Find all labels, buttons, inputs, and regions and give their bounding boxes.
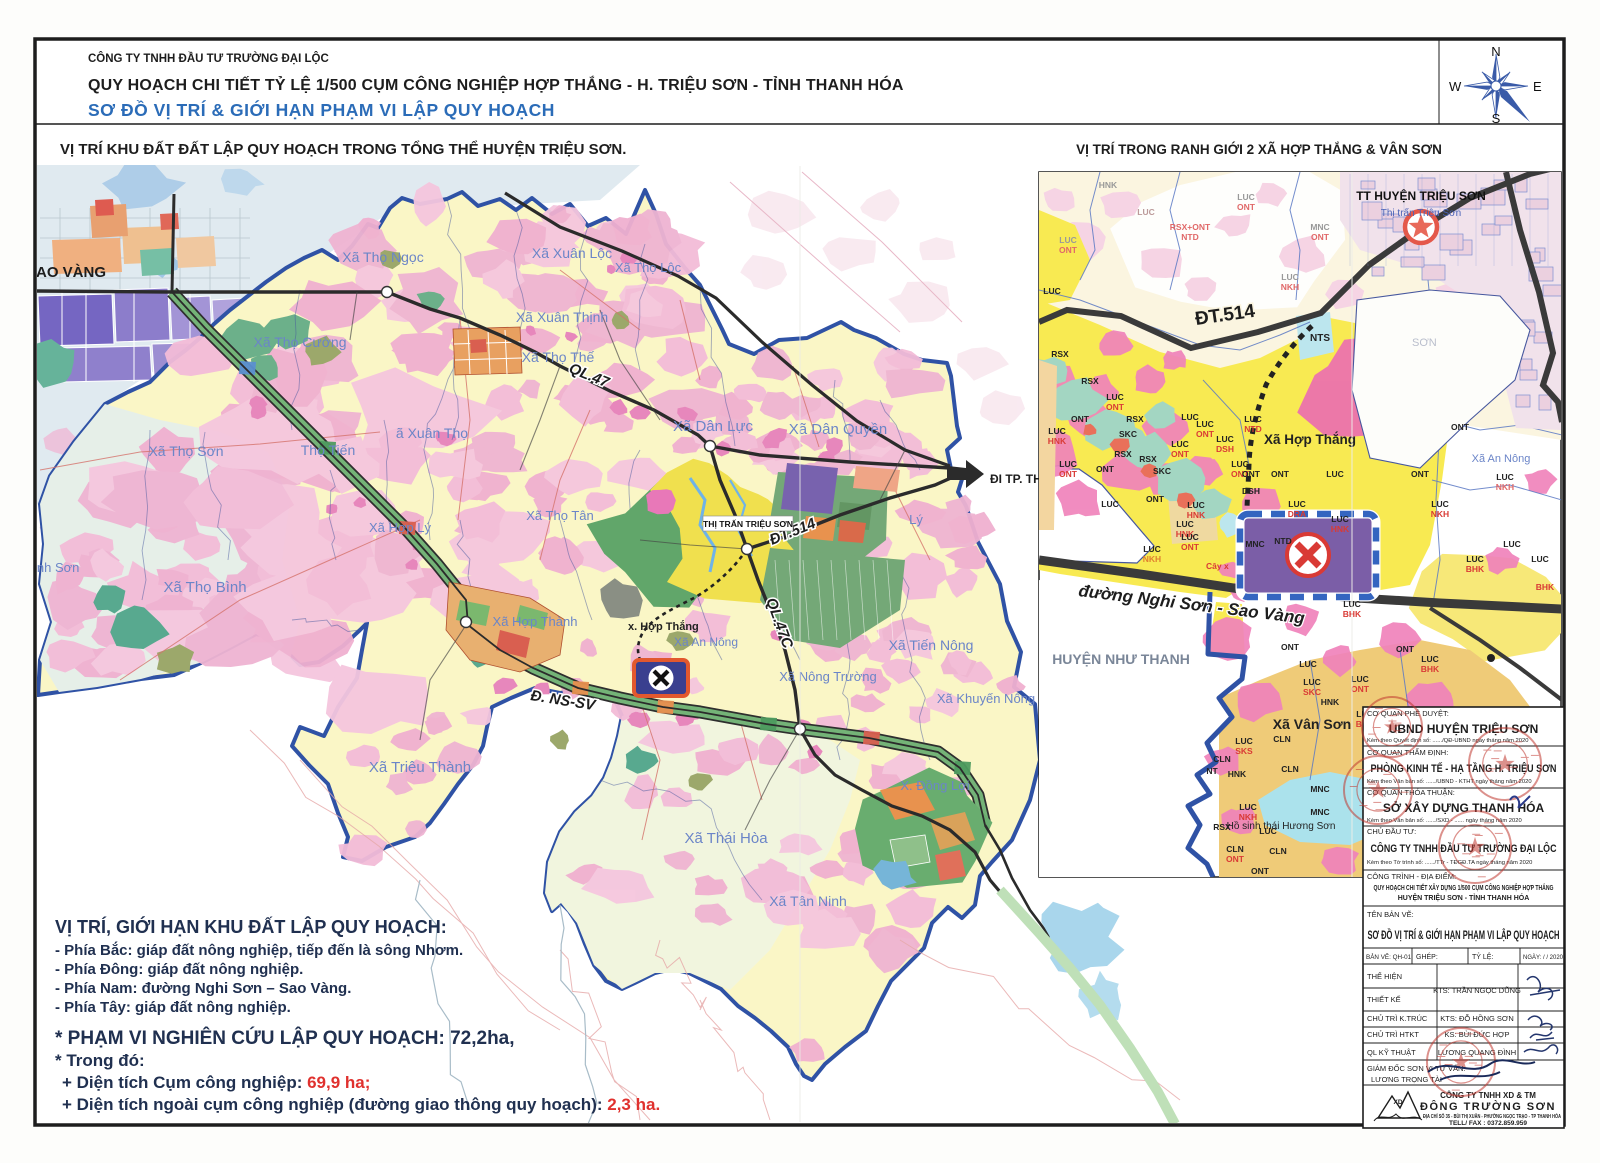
svg-text:THỊ TRẤN TRIỆU SƠN: THỊ TRẤN TRIỆU SƠN (703, 518, 793, 529)
svg-text:LUC: LUC (1326, 469, 1343, 479)
svg-text:LUC: LUC (1048, 426, 1065, 436)
svg-text:ONT: ONT (1146, 494, 1165, 504)
svg-text:LUC: LUC (1143, 544, 1160, 554)
svg-text:- Phía Bắc: giáp đất nông nghi: - Phía Bắc: giáp đất nông nghiệp, tiếp đ… (55, 941, 463, 959)
svg-text:LƯƠNG QUANG ĐÌNH: LƯƠNG QUANG ĐÌNH (1438, 1048, 1516, 1057)
svg-text:RSX: RSX (1114, 449, 1132, 459)
svg-text:Lý: Lý (909, 512, 923, 527)
svg-text:TT HUYỆN TRIỆU SƠN: TT HUYỆN TRIỆU SƠN (1356, 188, 1486, 203)
svg-text:- Phía Đông: giáp đất nông ngh: - Phía Đông: giáp đất nông nghiệp. (55, 961, 303, 978)
svg-text:VỊ TRÍ KHU ĐẤT ĐẤT LẬP QUY HOẠ: VỊ TRÍ KHU ĐẤT ĐẤT LẬP QUY HOẠCH TRONG T… (60, 140, 626, 158)
svg-text:LUC: LUC (1235, 736, 1252, 746)
svg-text:LUC: LUC (1171, 439, 1188, 449)
svg-text:LUC: LUC (1043, 286, 1060, 296)
svg-text:HNK: HNK (1099, 180, 1118, 190)
svg-text:Xã Xuân Thịnh: Xã Xuân Thịnh (516, 309, 608, 325)
svg-text:CÔNG TY TNHH ĐẦU TƯ TRƯỜNG ĐẠI: CÔNG TY TNHH ĐẦU TƯ TRƯỜNG ĐẠI LỘC (88, 52, 329, 65)
svg-text:- Phía Nam: đường Nghi Sơn – S: - Phía Nam: đường Nghi Sơn – Sao Vàng. (55, 980, 351, 997)
svg-text:UBND HUYỆN TRIỆU SƠN: UBND HUYỆN TRIỆU SƠN (1389, 721, 1539, 736)
svg-text:RSX: RSX (1139, 454, 1157, 464)
svg-text:ONT: ONT (1237, 202, 1256, 212)
svg-text:SƠ ĐỒ VỊ TRÍ & GIỚI HẠN PHẠM V: SƠ ĐỒ VỊ TRÍ & GIỚI HẠN PHẠM VI LẬP QUY … (88, 99, 555, 120)
svg-text:LUC: LUC (1303, 677, 1320, 687)
svg-text:LUC: LUC (1244, 414, 1261, 424)
svg-text:LUC: LUC (1106, 392, 1123, 402)
svg-text:ONT: ONT (1311, 232, 1330, 242)
svg-text:LUC: LUC (1351, 674, 1368, 684)
svg-text:LUC: LUC (1421, 654, 1438, 664)
svg-text:MNC: MNC (1310, 807, 1329, 817)
svg-text:NT: NT (1206, 766, 1218, 776)
svg-text:HNK: HNK (1048, 436, 1067, 446)
svg-text:CÔNG TRÌNH - ĐỊA ĐIỂM:: CÔNG TRÌNH - ĐỊA ĐIỂM: (1367, 872, 1456, 881)
svg-text:QUY HOẠCH CHI TIẾT TỶ LỆ 1/500: QUY HOẠCH CHI TIẾT TỶ LỆ 1/500 CỤM CÔNG … (88, 75, 904, 94)
svg-text:LUC: LUC (1331, 514, 1348, 524)
svg-text:NKH: NKH (1496, 482, 1514, 492)
svg-text:LUC: LUC (1531, 554, 1548, 564)
svg-text:ONT: ONT (1411, 469, 1430, 479)
svg-text:LUC: LUC (1259, 826, 1276, 836)
svg-text:LUC: LUC (1288, 499, 1305, 509)
svg-text:QL KỸ THUẬT: QL KỸ THUẬT (1367, 1048, 1416, 1057)
svg-text:RSX+ONT: RSX+ONT (1170, 222, 1211, 232)
svg-text:KTS: TRẦN NGỌC DŨNG: KTS: TRẦN NGỌC DŨNG (1433, 985, 1521, 995)
svg-text:ONT: ONT (1171, 449, 1190, 459)
svg-text:TÊN BẢN VẼ:: TÊN BẢN VẼ: (1367, 910, 1414, 919)
svg-text:ONT: ONT (1242, 469, 1261, 479)
svg-text:Xã Dân Quyền: Xã Dân Quyền (789, 421, 887, 438)
svg-text:RSX: RSX (1051, 349, 1069, 359)
svg-text:NKH: NKH (1281, 282, 1299, 292)
svg-text:SKS: SKS (1235, 746, 1253, 756)
svg-text:CLN: CLN (1273, 734, 1290, 744)
svg-text:Xã Thọ Cường: Xã Thọ Cường (253, 334, 346, 350)
svg-text:DSH: DSH (1242, 486, 1260, 496)
svg-text:SƠ ĐỒ VỊ TRÍ & GIỚI HẠN PHẠM V: SƠ ĐỒ VỊ TRÍ & GIỚI HẠN PHẠM VI LẬP QUY … (1368, 929, 1560, 942)
svg-text:SƠN: SƠN (1412, 337, 1437, 349)
svg-text:KTS: ĐỖ HỒNG SƠN: KTS: ĐỖ HỒNG SƠN (1440, 1013, 1514, 1023)
svg-text:LUC: LUC (1231, 459, 1248, 469)
svg-text:Xã An Nông: Xã An Nông (1472, 453, 1531, 465)
svg-text:ONT: ONT (1181, 542, 1200, 552)
svg-text:Xã Triệu Thành: Xã Triệu Thành (369, 759, 471, 776)
svg-text:Xã Tiến Nông: Xã Tiến Nông (889, 637, 974, 653)
svg-text:LUC: LUC (1181, 532, 1198, 542)
svg-text:SKC: SKC (1303, 687, 1321, 697)
svg-text:LUC: LUC (1299, 659, 1316, 669)
svg-text:E: E (1533, 79, 1542, 94)
svg-text:Xã Thọ Ngọc: Xã Thọ Ngọc (342, 249, 423, 265)
svg-text:* Trong đó:: * Trong đó: (55, 1051, 145, 1070)
svg-text:ONT: ONT (1451, 422, 1470, 432)
svg-text:ONT: ONT (1096, 464, 1115, 474)
svg-text:HUYỆN TRIỆU SƠN - TỈNH THANH H: HUYỆN TRIỆU SƠN - TỈNH THANH HÓA (1398, 893, 1530, 902)
svg-text:LUC: LUC (1101, 499, 1118, 509)
svg-text:Thị trấn Triệu Sơn: Thị trấn Triệu Sơn (1381, 207, 1461, 219)
svg-text:LUC: LUC (1059, 235, 1076, 245)
svg-text:NTD: NTD (1274, 536, 1291, 546)
svg-text:Kèm theo Văn bản số: ....: Kèm theo Văn bản số: ....../UBND - KTHT … (1367, 779, 1532, 785)
svg-text:ONT: ONT (1396, 644, 1415, 654)
svg-text:HUYỆN NHƯ THANH: HUYỆN NHƯ THANH (1052, 650, 1190, 667)
svg-text:SAO VÀNG: SAO VÀNG (26, 264, 106, 281)
svg-text:x. Hợp Thắng: x. Hợp Thắng (628, 620, 699, 633)
svg-text:SKC: SKC (1153, 466, 1171, 476)
svg-text:Xã Khuyến Nông: Xã Khuyến Nông (937, 691, 1035, 706)
svg-text:Xã Hợp Thắng: Xã Hợp Thắng (1264, 432, 1356, 447)
svg-text:THỂ HIỆN: THỂ HIỆN (1367, 972, 1402, 981)
svg-text:Xã Dân Lực: Xã Dân Lực (673, 418, 754, 435)
svg-text:ONT: ONT (1106, 402, 1125, 412)
svg-text:LUC: LUC (1466, 554, 1483, 564)
svg-text:LUC: LUC (1216, 434, 1233, 444)
svg-text:CLN: CLN (1281, 764, 1298, 774)
svg-text:Xã Thọ Thế: Xã Thọ Thế (522, 349, 595, 365)
svg-text:ONT: ONT (1059, 469, 1078, 479)
svg-text:LUC: LUC (1496, 472, 1513, 482)
svg-text:NTD: NTD (1181, 232, 1198, 242)
svg-text:X. Đồng Lợi: X. Đồng Lợi (900, 778, 969, 793)
svg-text:NGÀY: / / 2020: NGÀY: / / 2020 (1523, 954, 1564, 961)
svg-text:BHK: BHK (1536, 582, 1555, 592)
svg-text:LUC: LUC (1281, 272, 1298, 282)
svg-text:BẢN VẼ: QH-01: BẢN VẼ: QH-01 (1366, 952, 1412, 961)
svg-text:TELL/ FAX : 0372.859.959: TELL/ FAX : 0372.859.959 (1449, 1120, 1527, 1127)
svg-text:Thọ Tiến: Thọ Tiến (301, 442, 355, 458)
svg-text:RSX: RSX (1081, 376, 1099, 386)
svg-text:Xã Thọ Lộc: Xã Thọ Lộc (615, 260, 682, 275)
svg-text:NKH: NKH (1143, 554, 1161, 564)
svg-text:ONT: ONT (1059, 245, 1078, 255)
svg-text:LUC: LUC (1196, 419, 1213, 429)
svg-text:ONT: ONT (1071, 414, 1090, 424)
svg-text:RSX: RSX (1126, 414, 1144, 424)
svg-text:Xã Thái Hòa: Xã Thái Hòa (684, 830, 768, 847)
svg-text:LUC: LUC (1239, 802, 1256, 812)
svg-text:ONT: ONT (1196, 429, 1215, 439)
svg-text:ONT: ONT (1226, 854, 1245, 864)
svg-text:MNC: MNC (1310, 784, 1329, 794)
svg-text:Xã Thọ Bình: Xã Thọ Bình (163, 579, 246, 596)
svg-text:CLN: CLN (1269, 846, 1286, 856)
svg-text:ĐỊA CHỈ SỐ 35 - BÙI THỊ XUÂN -: ĐỊA CHỈ SỐ 35 - BÙI THỊ XUÂN - PHƯỜNG NG… (1423, 1112, 1561, 1120)
svg-text:NKH: NKH (1239, 812, 1257, 822)
svg-text:- Phía Tây: giáp đất nông ngh: - Phía Tây: giáp đất nông nghiệp. (55, 999, 291, 1016)
svg-text:LUC: LUC (1059, 459, 1076, 469)
svg-text:Xã Xuân Lộc: Xã Xuân Lộc (532, 245, 612, 261)
svg-text:TỶ LỆ:: TỶ LỆ: (1472, 952, 1493, 961)
svg-text:CLN: CLN (1213, 754, 1230, 764)
svg-text:HNK: HNK (1331, 524, 1350, 534)
svg-text:MNC: MNC (1310, 222, 1329, 232)
svg-text:Xã Nông Trường: Xã Nông Trường (779, 669, 876, 684)
svg-text:LUC: LUC (1187, 500, 1204, 510)
svg-text:THIẾT KẾ: THIẾT KẾ (1367, 994, 1401, 1004)
svg-text:NTD: NTD (1244, 424, 1261, 434)
svg-text:BHK: BHK (1421, 664, 1440, 674)
svg-text:DSH: DSH (1216, 444, 1234, 454)
svg-text:ĐÔNG TRƯỜNG SƠN: ĐÔNG TRƯỜNG SƠN (1420, 1100, 1556, 1113)
svg-text:LUC: LUC (1431, 499, 1448, 509)
svg-text:Xã Vân Sơn: Xã Vân Sơn (1273, 716, 1351, 732)
svg-text:ã Xuân Thọ: ã Xuân Thọ (396, 425, 468, 441)
svg-text:+ Diện tích ngoài cụm công ngh: + Diện tích ngoài cụm công nghiệp (đường… (62, 1095, 660, 1114)
svg-text:VỊ TRÍ, GIỚI HẠN KHU ĐẤT LẬP Q: VỊ TRÍ, GIỚI HẠN KHU ĐẤT LẬP QUY HOẠCH: (55, 916, 447, 937)
svg-text:Xã Hợp Thành: Xã Hợp Thành (493, 614, 578, 629)
svg-text:S: S (1492, 111, 1501, 126)
svg-text:N: N (1491, 44, 1500, 59)
svg-text:LUC: LUC (1237, 192, 1254, 202)
svg-text:NTS: NTS (1310, 333, 1330, 344)
svg-text:HNK: HNK (1228, 769, 1247, 779)
svg-text:GHÉP:: GHÉP: (1416, 952, 1438, 961)
svg-text:VỊ TRÍ TRONG RANH GIỚI 2 XÃ HỢ: VỊ TRÍ TRONG RANH GIỚI 2 XÃ HỢP THẮNG & … (1076, 142, 1442, 157)
svg-text:CLN: CLN (1226, 844, 1243, 854)
svg-text:SKC: SKC (1119, 429, 1137, 439)
svg-text:CHỦ ĐẦU TƯ:: CHỦ ĐẦU TƯ: (1367, 826, 1416, 836)
svg-text:LUC: LUC (1503, 539, 1520, 549)
svg-text:Xã Hợp Lý: Xã Hợp Lý (369, 520, 431, 535)
svg-text:CHỦ TRÌ HTKT: CHỦ TRÌ HTKT (1367, 1030, 1419, 1039)
svg-text:LUC: LUC (1176, 519, 1193, 529)
svg-text:ONT: ONT (1251, 866, 1270, 876)
svg-text:MNC: MNC (1245, 539, 1264, 549)
svg-text:Kèm theo Quyết định số: .: Kèm theo Quyết định số: ....../QĐ-UBND n… (1367, 738, 1528, 744)
svg-text:Xã An Nông: Xã An Nông (674, 635, 738, 649)
svg-text:Xã Thọ Sơn: Xã Thọ Sơn (148, 443, 223, 459)
svg-text:Xã Tân Ninh: Xã Tân Ninh (769, 893, 847, 909)
svg-text:ONT: ONT (1271, 469, 1290, 479)
svg-text:W: W (1449, 79, 1462, 94)
svg-text:NKH: NKH (1431, 509, 1449, 519)
svg-text:BHK: BHK (1466, 564, 1485, 574)
svg-text:+ Diện tích Cụm công nghiệp: 6: + Diện tích Cụm công nghiệp: 69,9 ha; (62, 1073, 370, 1092)
svg-text:HNK: HNK (1321, 697, 1340, 707)
svg-text:RSX: RSX (1213, 822, 1231, 832)
svg-text:Cây x: Cây x (1206, 561, 1229, 571)
svg-text:HNK: HNK (1187, 510, 1206, 520)
svg-text:XD: XD (1393, 1099, 1402, 1106)
svg-text:DRA: DRA (1288, 509, 1306, 519)
svg-text:CHỦ TRÌ K.TRÚC: CHỦ TRÌ K.TRÚC (1367, 1014, 1428, 1023)
svg-text:Xã Thọ Tân: Xã Thọ Tân (526, 508, 593, 523)
svg-text:ONT: ONT (1351, 684, 1370, 694)
svg-text:LUC: LUC (1137, 207, 1154, 217)
svg-text:ONT: ONT (1281, 642, 1300, 652)
svg-text:* PHẠM VI NGHIÊN CỨU LẬP QUY H: * PHẠM VI NGHIÊN CỨU LẬP QUY HOẠCH: 72,2… (55, 1027, 515, 1049)
